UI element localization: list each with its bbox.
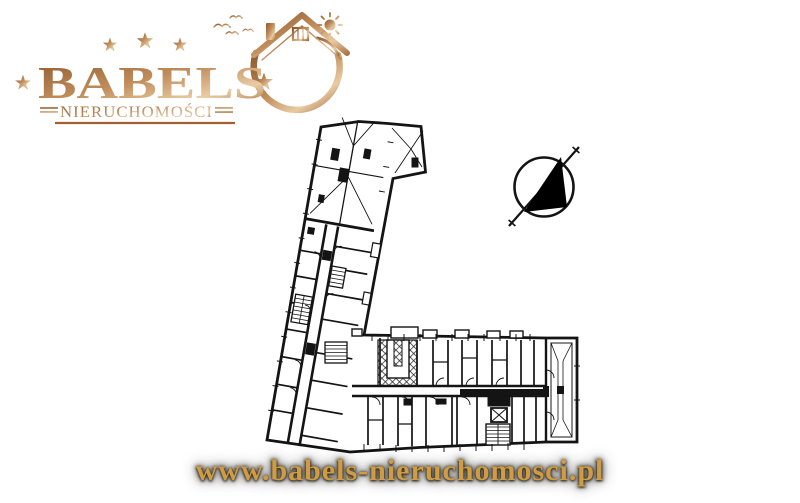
elevator bbox=[488, 393, 510, 422]
page: BABELS NIERUCHOMOŚCI bbox=[0, 0, 800, 503]
floor-plan bbox=[0, 0, 800, 503]
website-url[interactable]: www.babels-nieruchomosci.pl bbox=[190, 452, 611, 490]
north-arrow-icon bbox=[509, 147, 580, 226]
footer: www.babels-nieruchomosci.pl bbox=[0, 452, 800, 490]
staircase bbox=[325, 342, 347, 363]
staircase bbox=[486, 424, 510, 445]
building-outline bbox=[267, 122, 577, 453]
hatched-room bbox=[378, 340, 417, 386]
